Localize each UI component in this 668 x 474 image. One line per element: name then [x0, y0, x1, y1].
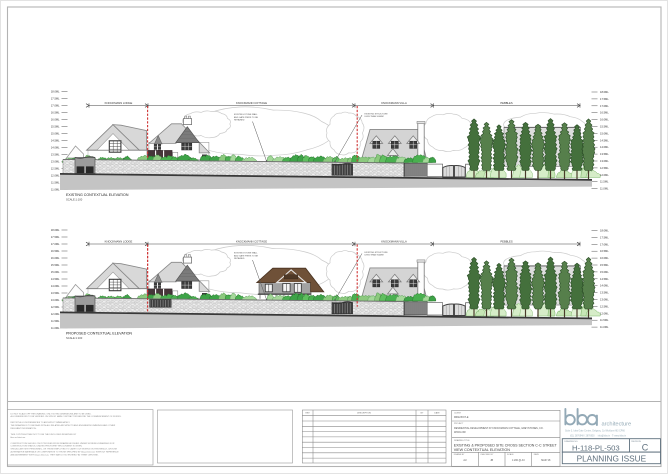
svg-text:16.5ML: 16.5ML: [600, 111, 609, 115]
svg-text:RESIDENTIAL DEVELOPMENT AT KNO: RESIDENTIAL DEVELOPMENT AT KNOCKMANN COT…: [454, 427, 544, 430]
svg-text:18.0ML: 18.0ML: [51, 228, 60, 232]
svg-text:CLIENT: CLIENT: [454, 412, 462, 414]
svg-text:12.0ML: 12.0ML: [600, 173, 609, 177]
svg-text:15.5ML: 15.5ML: [51, 125, 60, 129]
svg-text:JB: JB: [490, 459, 493, 462]
svg-text:CHECKED BY: CHECKED BY: [480, 454, 494, 456]
svg-text:14.0ML: 14.0ML: [600, 145, 609, 149]
svg-text:15.0ML: 15.0ML: [600, 270, 609, 274]
svg-text:THIS COPYRIGHT MAY NOT TO BE T: THIS COPYRIGHT MAY NOT TO BE THE DISCLOS…: [11, 433, 77, 436]
svg-text:17.5ML: 17.5ML: [600, 235, 609, 239]
svg-text:12.0ML: 12.0ML: [51, 174, 60, 178]
svg-text:PROPOSED CONTEXTUAL ELEVATION: PROPOSED CONTEXTUAL ELEVATION: [66, 331, 132, 335]
svg-text:18.0ML: 18.0ML: [600, 90, 609, 94]
svg-text:REV: REV: [306, 413, 311, 415]
svg-text:17.0ML: 17.0ML: [51, 104, 60, 108]
svg-text:DO NOT SCALE OFF THE DRAWING.: DO NOT SCALE OFF THE DRAWING. ONLY NOTED…: [11, 412, 92, 415]
svg-text:CONSTRUCTION SHOULD ONLY PROCE: CONSTRUCTION SHOULD ONLY PROCEED FROM DR…: [11, 442, 115, 445]
svg-text:PROJECT: PROJECT: [454, 423, 464, 425]
svg-text:13.0ML: 13.0ML: [51, 298, 60, 302]
svg-text:H-118-PL-503: H-118-PL-503: [572, 443, 620, 452]
svg-text:11.0ML: 11.0ML: [600, 187, 609, 191]
svg-text:12.0ML: 12.0ML: [51, 312, 60, 316]
svg-text:14.0ML: 14.0ML: [600, 284, 609, 288]
svg-text:12.5ML: 12.5ML: [51, 167, 60, 171]
svg-text:bba architecture.: bba architecture.: [11, 436, 27, 439]
svg-text:13.0ML: 13.0ML: [600, 298, 609, 302]
svg-text:REPORT ALL DISCREPANCIES TO AR: REPORT ALL DISCREPANCIES TO ARCHITECT IM…: [11, 421, 71, 424]
svg-text:16.0ML: 16.0ML: [51, 118, 60, 122]
svg-text:15.5ML: 15.5ML: [600, 263, 609, 267]
svg-text:15.5ML: 15.5ML: [51, 263, 60, 267]
svg-text:(01) 2876948 / 2876950 inf: (01) 2876948 / 2876950 info@bba.ie © www…: [570, 435, 627, 438]
svg-text:MAR '18: MAR '18: [541, 459, 551, 462]
svg-text:11.0ML: 11.0ML: [51, 326, 60, 330]
svg-text:Suite 3, Idea Gate Centre, Del: Suite 3, Idea Gate Centre, Delgany, Co W…: [565, 429, 626, 432]
svg-text:13.5ML: 13.5ML: [600, 291, 609, 295]
svg-text:EXISTING CONTEXTUAL ELEVATION: EXISTING CONTEXTUAL ELEVATION: [66, 193, 129, 197]
svg-text:11.5ML: 11.5ML: [600, 180, 609, 184]
svg-text:16.0ML: 16.0ML: [51, 256, 60, 260]
svg-text:REVISION: REVISION: [631, 441, 641, 443]
svg-text:18.0ML: 18.0ML: [600, 229, 609, 233]
svg-text:RELEVANT INFORMATION.: RELEVANT INFORMATION.: [11, 427, 37, 430]
svg-text:11.0ML: 11.0ML: [600, 325, 609, 329]
svg-text:13.0ML: 13.0ML: [600, 159, 609, 163]
svg-text:DRAWING TITLE: DRAWING TITLE: [454, 439, 470, 442]
svg-text:15.0ML: 15.0ML: [51, 132, 60, 136]
svg-text:PLANNING ISSUE: PLANNING ISSUE: [577, 454, 647, 464]
svg-text:MIKE BOYLE: MIKE BOYLE: [454, 416, 469, 419]
svg-text:DATE: DATE: [434, 412, 440, 415]
svg-text:architecture: architecture: [602, 422, 632, 428]
svg-text:11.0ML: 11.0ML: [51, 188, 60, 192]
svg-text:THE DRAWING IS TO BE READ WITH: THE DRAWING IS TO BE READ WITH ALL RELAT…: [11, 424, 116, 427]
svg-text:15.0ML: 15.0ML: [51, 270, 60, 274]
svg-text:15.5ML: 15.5ML: [600, 125, 609, 129]
svg-text:11.5ML: 11.5ML: [600, 318, 609, 322]
svg-text:17.0ML: 17.0ML: [600, 242, 609, 246]
svg-text:14.5ML: 14.5ML: [600, 277, 609, 281]
svg-text:17.5ML: 17.5ML: [600, 97, 609, 101]
svg-text:SCALE:1:100: SCALE:1:100: [66, 336, 83, 340]
svg-text:12.5ML: 12.5ML: [600, 304, 609, 308]
svg-text:16.5ML: 16.5ML: [51, 111, 60, 115]
svg-text:16.0ML: 16.0ML: [600, 256, 609, 260]
svg-text:DRAWN BY: DRAWN BY: [454, 453, 465, 456]
svg-text:17.5ML: 17.5ML: [51, 235, 60, 239]
svg-text:DATE: DATE: [534, 453, 540, 456]
svg-text:13.5ML: 13.5ML: [600, 152, 609, 156]
svg-text:11.5ML: 11.5ML: [51, 181, 60, 185]
svg-text:14.0ML: 14.0ML: [51, 284, 60, 288]
svg-text:14.0ML: 14.0ML: [51, 146, 60, 150]
svg-text:14.5ML: 14.5ML: [51, 277, 60, 281]
svg-text:13.5ML: 13.5ML: [51, 153, 60, 157]
svg-text:SHOULD ANY SITE PERSONNEL, OR: SHOULD ANY SITE PERSONNEL, OR THOSE EMPL…: [11, 448, 118, 451]
svg-text:VIEW CONTEXTUAL ELEVATION: VIEW CONTEXTUAL ELEVATION: [454, 448, 511, 452]
svg-text:C: C: [642, 443, 649, 453]
svg-text:12.0ML: 12.0ML: [600, 311, 609, 315]
svg-text:SCALE:1:100: SCALE:1:100: [66, 198, 83, 202]
svg-text:CONSTRUCTION STATUS, UNLESS PR: CONSTRUCTION STATUS, UNLESS PRIOR WRITTE…: [11, 445, 83, 448]
svg-text:ALL DIMENSIONS TO BE VERIFIED: ALL DIMENSIONS TO BE VERIFIED ON SITE BY…: [11, 415, 122, 418]
svg-text:DESCRIPTION: DESCRIPTION: [357, 413, 371, 415]
svg-text:18.0ML: 18.0ML: [51, 90, 60, 94]
svg-text:17.0ML: 17.0ML: [600, 104, 609, 108]
svg-text:14.5ML: 14.5ML: [600, 138, 609, 142]
svg-text:EXISTING & PROPOSED SITE CROSS: EXISTING & PROPOSED SITE CROSS SECTION C…: [454, 443, 558, 447]
svg-text:13.0ML: 13.0ML: [51, 160, 60, 164]
svg-text:WICKLOW: WICKLOW: [454, 431, 466, 434]
svg-text:17.0ML: 17.0ML: [51, 242, 60, 246]
svg-text:16.5ML: 16.5ML: [600, 249, 609, 253]
svg-text:13.5ML: 13.5ML: [51, 291, 60, 295]
svg-text:16.5ML: 16.5ML: [51, 249, 60, 253]
svg-text:11.5ML: 11.5ML: [51, 319, 60, 323]
svg-text:15.0ML: 15.0ML: [600, 131, 609, 135]
svg-text:12.5ML: 12.5ML: [600, 166, 609, 170]
svg-text:17.5ML: 17.5ML: [51, 97, 60, 101]
svg-text:ALTERNATIVE MATERIALS OR COMPO: ALTERNATIVE MATERIALS OR COMPONENTS TO T…: [11, 451, 120, 454]
svg-text:16.0ML: 16.0ML: [600, 118, 609, 122]
svg-text:1:200 @ A3: 1:200 @ A3: [512, 459, 525, 462]
svg-text:AU: AU: [463, 459, 467, 462]
svg-text:12.5ML: 12.5ML: [51, 305, 60, 309]
svg-text:SCALE: SCALE: [507, 453, 514, 456]
svg-text:14.5ML: 14.5ML: [51, 139, 60, 143]
svg-text:AND AGREEMENT WITH bbaarchitec: AND AGREEMENT WITH bbaarchitecture, THEY…: [11, 454, 100, 457]
